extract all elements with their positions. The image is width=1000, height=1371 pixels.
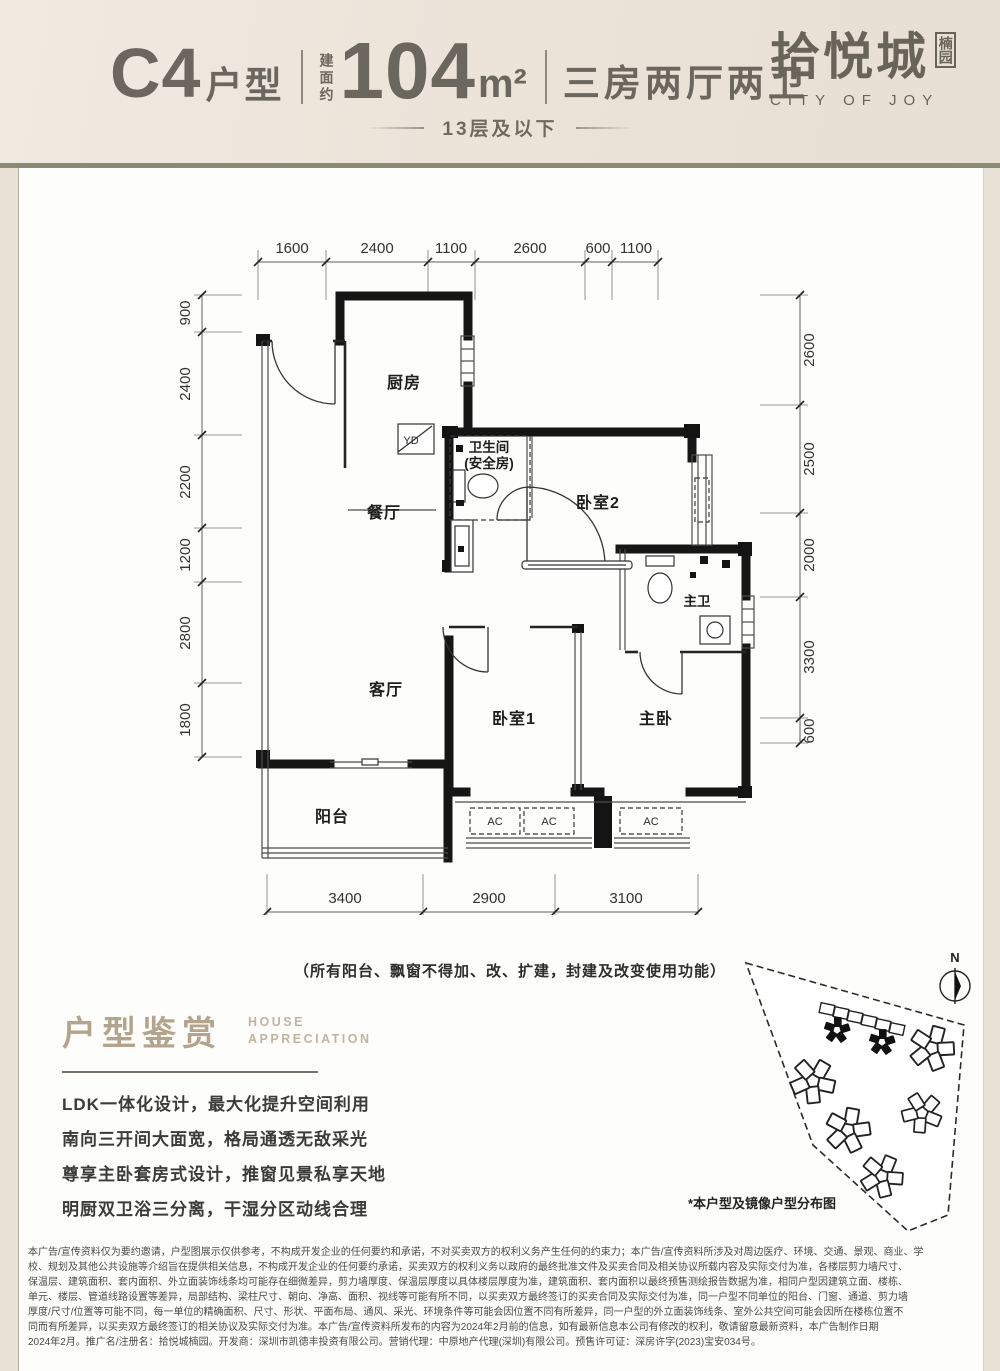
appreciation-divider — [62, 1071, 318, 1073]
room-label-balcony: 阳台 — [315, 807, 349, 826]
dims-left: 900 2400 2200 1200 2800 1800 — [177, 291, 242, 761]
legal-line: 本广告/宣传资料仅为要约邀请，户型图展示仅供参考，不构成开发企业的任何要约和承诺… — [28, 1245, 974, 1260]
headline: C4 户型 建面约 104 m² 三房两厅两卫 — [110, 34, 809, 108]
legal-line: 单元、楼层、管道线路设置等差异，局部结构、梁柱尺寸、朝向、净高、面积、视线等可能… — [28, 1290, 974, 1305]
appreciation-point: 明厨双卫浴三分离，干湿分区动线合理 — [62, 1192, 422, 1227]
room-label-living: 客厅 — [369, 680, 403, 699]
siteplan-svg: N *本户型及镜像户型分布图 — [660, 938, 1000, 1250]
walls — [256, 296, 752, 858]
floor-range-note: 13层及以下 — [0, 114, 1000, 141]
brand-seal: 楠园 — [935, 32, 956, 68]
svg-text:900: 900 — [177, 300, 194, 325]
svg-text:600: 600 — [585, 240, 610, 257]
windows: AC AC AC — [262, 336, 754, 858]
area-value: 104 — [339, 34, 475, 108]
legal-line: 厚度/尺寸/位置等可能不同，每一单位的精确面积、尺寸、形状、平面布局、通风、采光… — [28, 1305, 974, 1320]
decor-line-right — [576, 127, 634, 129]
svg-text:2600: 2600 — [801, 333, 818, 366]
svg-text:2500: 2500 — [801, 442, 818, 475]
brand-logo: 拾悦城 楠园 CITY OF JOY — [770, 32, 956, 109]
appreciation-section: 户型鉴赏 HOUSE APPRECIATION LDK一体化设计，最大化提升空间… — [62, 1006, 422, 1227]
dims-bottom: 3400 2900 3100 — [263, 874, 702, 915]
svg-text:1200: 1200 — [177, 538, 194, 571]
header: C4 户型 建面约 104 m² 三房两厅两卫 拾悦城 楠园 CITY OF J… — [0, 0, 1000, 163]
yd-label: YD — [403, 435, 418, 447]
ac-label: AC — [487, 816, 502, 828]
svg-text:2400: 2400 — [177, 367, 194, 400]
appreciation-title: 户型鉴赏 — [62, 1006, 222, 1055]
svg-text:2600: 2600 — [513, 240, 546, 257]
svg-text:2400: 2400 — [360, 240, 393, 257]
svg-text:2800: 2800 — [177, 616, 194, 649]
floor-range-text: 13层及以下 — [442, 114, 557, 141]
laundry-box: YD — [398, 424, 434, 454]
ac-label: AC — [643, 816, 658, 828]
svg-text:2000: 2000 — [801, 538, 818, 571]
legal-line: 保温层、建筑面积、套内面积、外立面装饰线条均可能存在细微差异，剪力墙厚度、保温层… — [28, 1275, 974, 1290]
svg-text:1800: 1800 — [177, 703, 194, 736]
appreciation-points: LDK一体化设计，最大化提升空间利用 南向三开间大面宽，格局通透无敌采光 尊享主… — [62, 1087, 422, 1227]
room-label-bedroom2: 卧室2 — [576, 493, 620, 512]
dims-top: 1600 2400 1100 2600 600 1100 — [254, 240, 662, 300]
svg-text:2200: 2200 — [177, 465, 194, 498]
header-divider — [301, 50, 303, 104]
svg-text:1100: 1100 — [435, 240, 467, 257]
appreciation-point: 尊享主卧套房式设计，推窗见景私享天地 — [62, 1157, 422, 1192]
unit-suffix: 户型 — [205, 67, 283, 104]
brand-name: 拾悦城 — [770, 32, 929, 82]
floorplan-svg: 1600 2400 1100 2600 600 1100 900 2400 22… — [150, 215, 850, 915]
header-divider — [545, 50, 547, 104]
svg-text:3300: 3300 — [801, 640, 818, 673]
room-label-master-bath: 主卫 — [684, 593, 712, 609]
decor-line-left — [366, 127, 424, 129]
area-prefix: 建面约 — [319, 53, 333, 104]
room-label-dining: 餐厅 — [366, 503, 401, 522]
compass-icon: N — [940, 950, 970, 1004]
svg-text:1600: 1600 — [275, 240, 308, 257]
ac-label: AC — [541, 816, 556, 828]
legal-disclaimer: 本广告/宣传资料仅为要约邀请，户型图展示仅供参考，不构成开发企业的任何要约和承诺… — [28, 1245, 974, 1350]
svg-text:N: N — [950, 950, 959, 965]
brand-english: CITY OF JOY — [770, 92, 956, 109]
room-label-bedroom1: 卧室1 — [492, 709, 536, 728]
svg-text:600: 600 — [801, 718, 818, 743]
area-unit: m² — [478, 64, 527, 104]
legal-line: 校、规划及其他公共设施等介绍旨在提供相关信息，不构成开发企业的任何要约承诺，买卖… — [28, 1260, 974, 1275]
svg-text:3400: 3400 — [328, 890, 361, 907]
appreciation-point: LDK一体化设计，最大化提升空间利用 — [62, 1087, 422, 1122]
dims-right: 2600 2500 2000 3300 600 — [760, 291, 818, 747]
legal-line: 同而有所差异，以买卖双方最终签订的相关协议及实际交付为准。本广告/宣传资料所发布… — [28, 1320, 974, 1335]
svg-text:3100: 3100 — [609, 890, 642, 907]
svg-text:2900: 2900 — [472, 890, 505, 907]
legal-line: 2024年2月。推广名/注册名：拾悦城楠园。开发商：深圳市凯德丰投资有限公司。营… — [28, 1335, 974, 1350]
siteplan-caption: *本户型及镜像户型分布图 — [688, 1196, 836, 1211]
appreciation-point: 南向三开间大面宽，格局通透无敌采光 — [62, 1122, 422, 1157]
room-label-bath-2: (安全房) — [464, 455, 514, 471]
room-label-bath: 卫生间 — [469, 439, 510, 455]
room-label-master: 主卧 — [639, 709, 673, 728]
appreciation-subtitle: HOUSE APPRECIATION — [248, 1014, 372, 1048]
room-label-kitchen: 厨房 — [387, 373, 421, 392]
unit-code: C4 — [110, 38, 201, 108]
svg-text:1100: 1100 — [620, 240, 652, 257]
